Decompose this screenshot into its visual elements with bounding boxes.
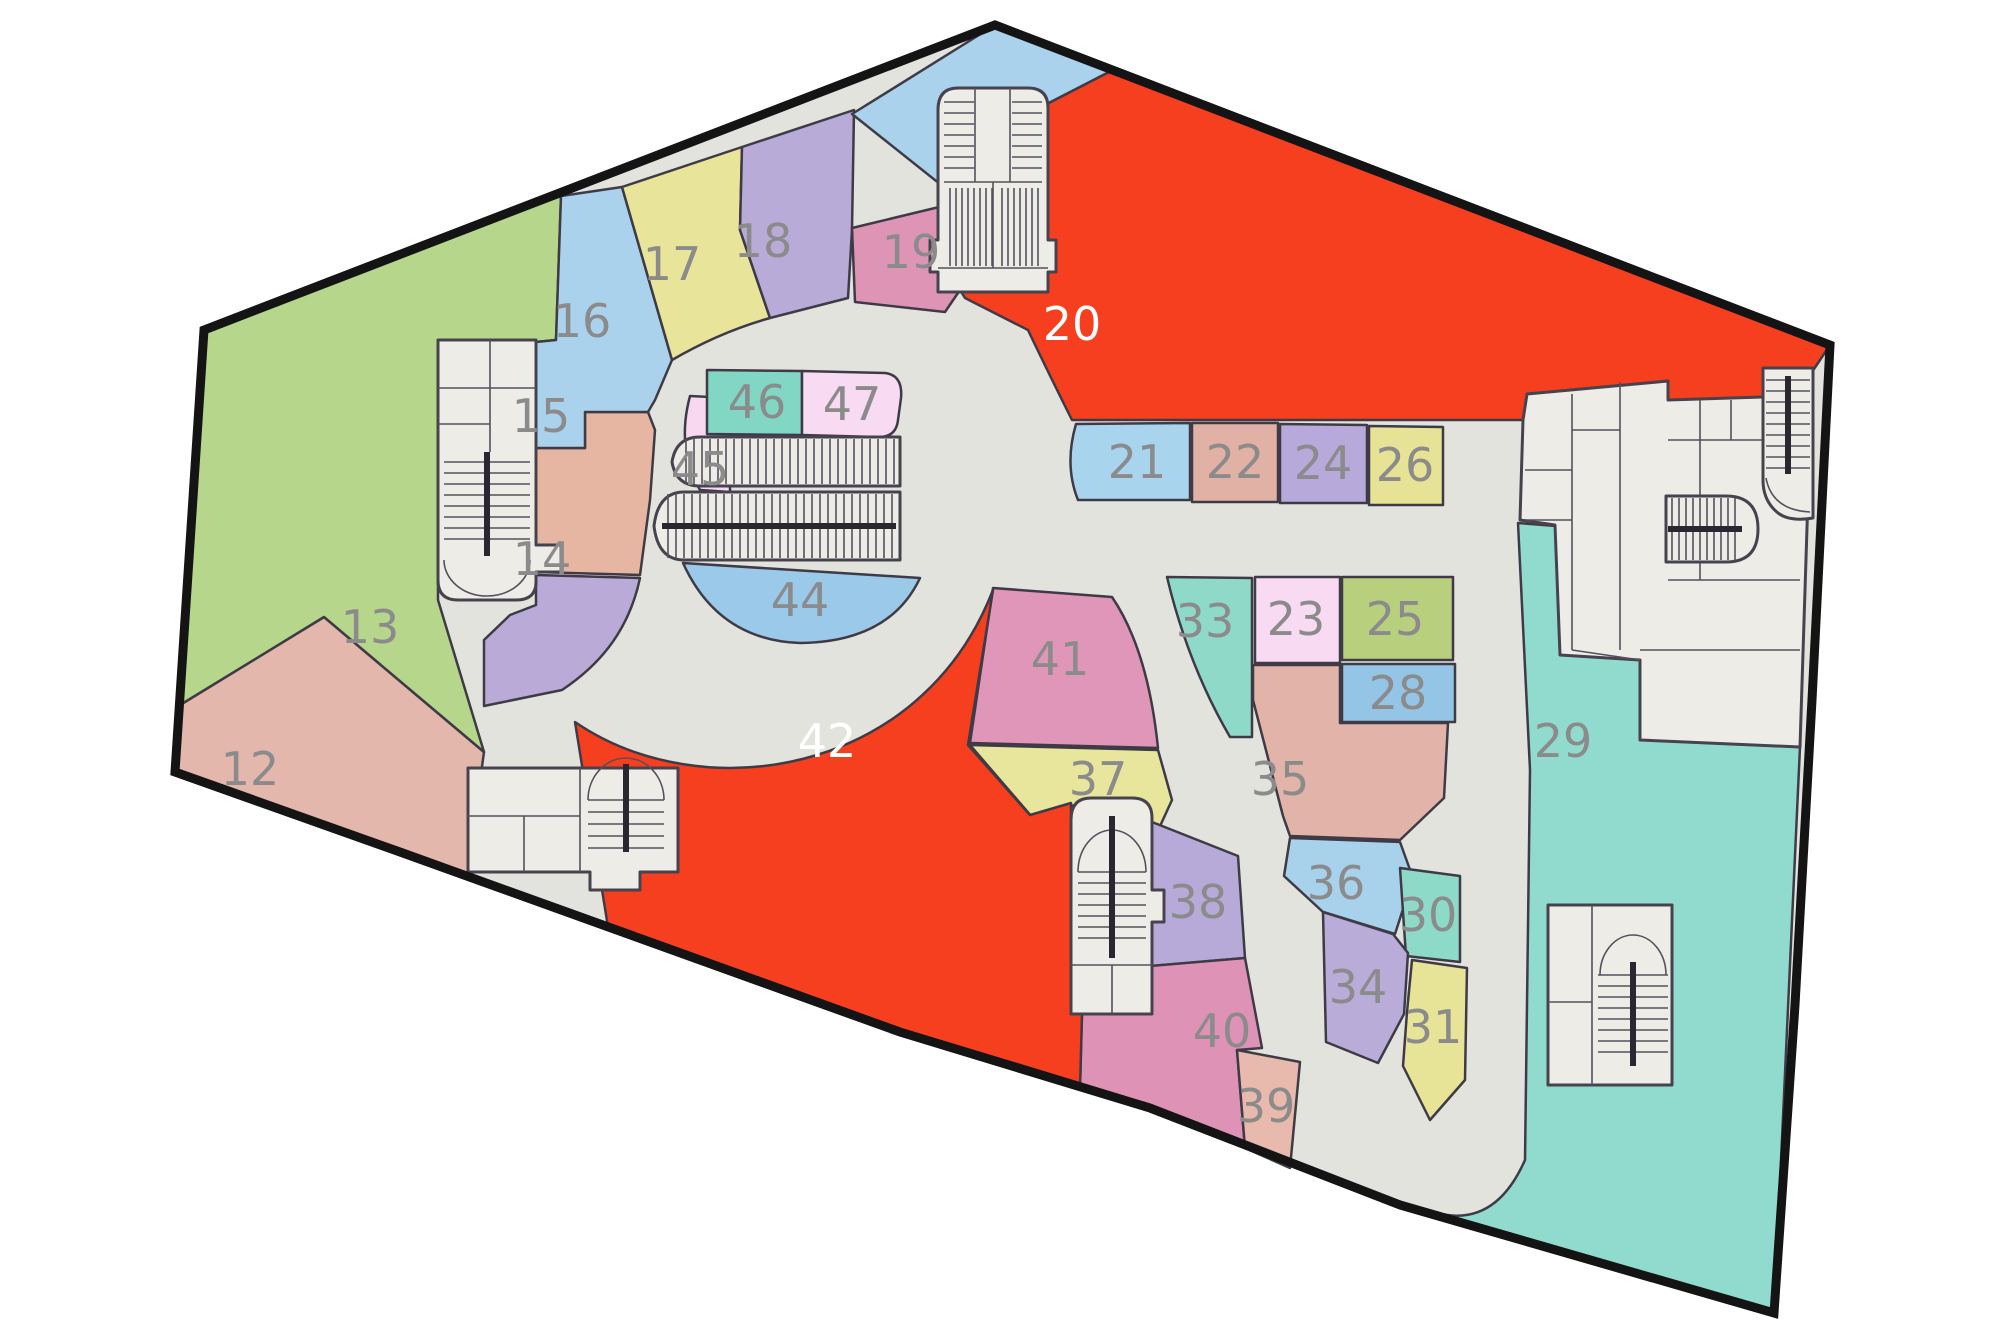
unit-29-label: 29 [1534,714,1593,768]
stairwell-top [930,88,1056,292]
mall-floor-plan: 1213141516171819202122242633232528353630… [0,0,2000,1341]
unit-28-label: 28 [1369,666,1428,720]
unit-35-label: 35 [1251,752,1310,806]
unit-14-label: 14 [513,532,572,586]
floor-plan-stage: 1213141516171819202122242633232528353630… [0,0,2000,1341]
unit-47-label: 47 [823,377,882,431]
unit-18-label: 18 [734,214,793,268]
unit-33-label: 33 [1176,594,1235,648]
unit-36-label: 36 [1307,856,1366,910]
unit-37-label: 37 [1069,752,1128,806]
unit-23-label: 23 [1267,592,1326,646]
unit-17-label: 17 [643,237,702,291]
unit-30-label: 30 [1399,888,1458,942]
escalator-center-lower [654,492,900,560]
unit-22-label: 22 [1206,435,1265,489]
unit-34-label: 34 [1329,960,1388,1014]
unit-19-label: 19 [882,225,941,279]
unit-16-label: 16 [553,294,612,348]
unit-42-label: 42 [798,714,857,768]
stairwell-29 [1548,905,1672,1085]
unit-20-label: 20 [1043,297,1102,351]
stairwell-29-base [1548,905,1672,1085]
stairwell-southwest-base [468,768,678,890]
stairwell-south [1071,798,1164,1014]
escalator-right [1666,496,1758,562]
stairwell-right [1763,368,1813,519]
unit-40-label: 40 [1193,1004,1252,1058]
unit-26-label: 26 [1376,438,1435,492]
unit-24-label: 24 [1294,436,1353,490]
unit-12-label: 12 [221,742,280,796]
unit-31-label: 31 [1404,1000,1463,1054]
unit-45-label: 45 [671,442,730,496]
unit-15-label: 15 [512,389,571,443]
unit-20[interactable] [960,70,1830,420]
unit-25-label: 25 [1366,592,1425,646]
unit-46-label: 46 [728,375,787,429]
stairwell-southwest [468,758,678,890]
unit-41-label: 41 [1031,632,1090,686]
unit-39-label: 39 [1237,1079,1296,1133]
unit-38-label: 38 [1169,875,1228,929]
unit-13-label: 13 [341,600,400,654]
unit-44-label: 44 [771,573,830,627]
unit-21-label: 21 [1108,435,1167,489]
